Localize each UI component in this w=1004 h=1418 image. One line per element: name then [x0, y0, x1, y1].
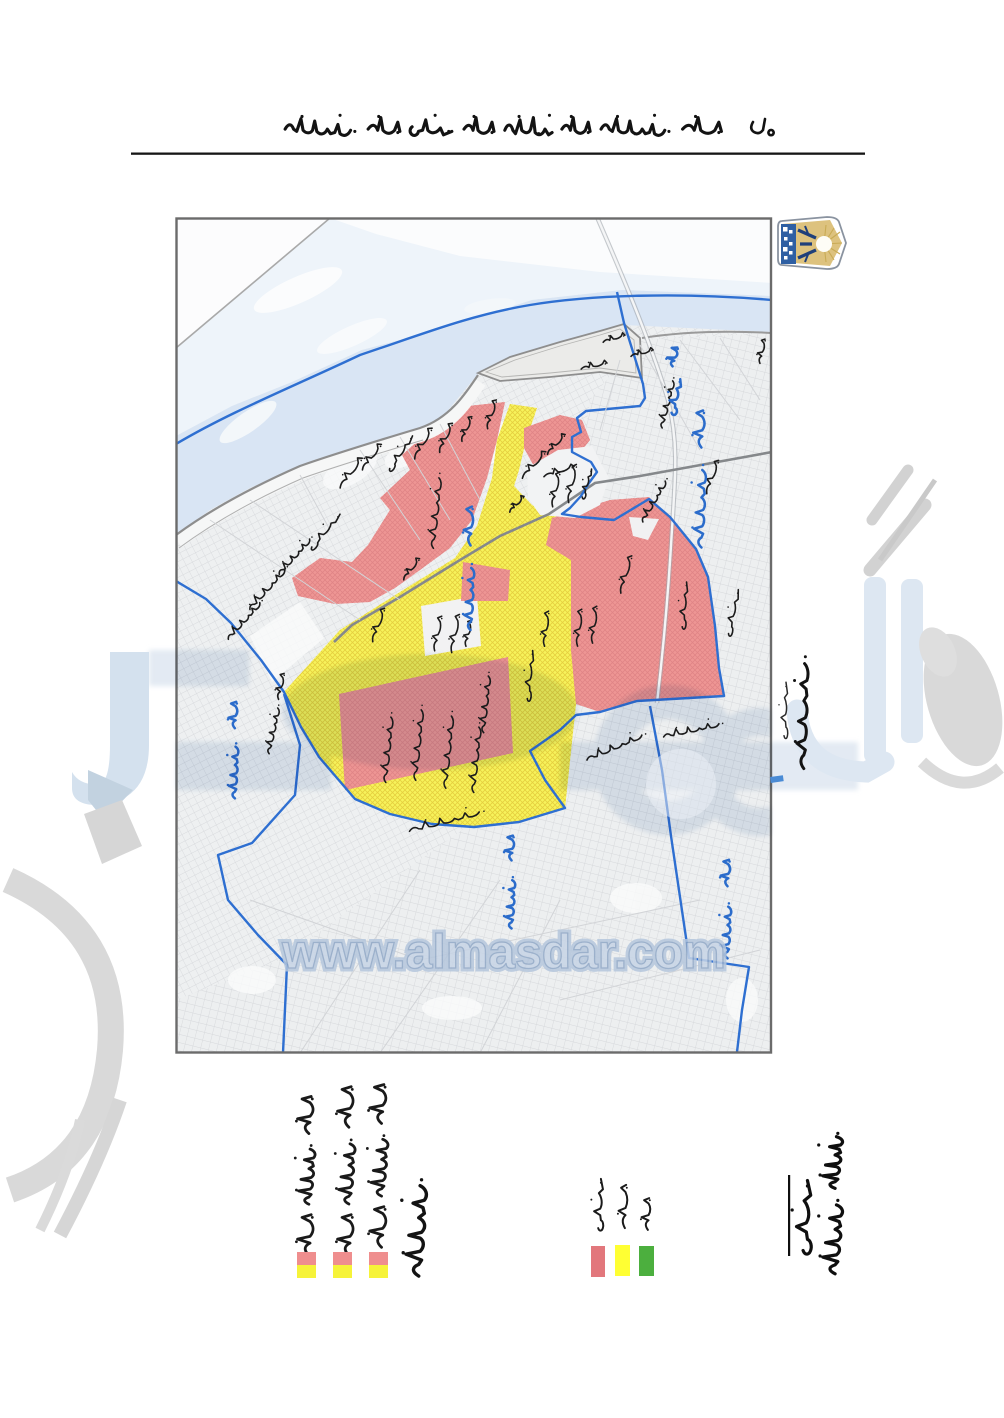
- svg-text:www.almasdar.com: www.almasdar.com: [281, 926, 726, 979]
